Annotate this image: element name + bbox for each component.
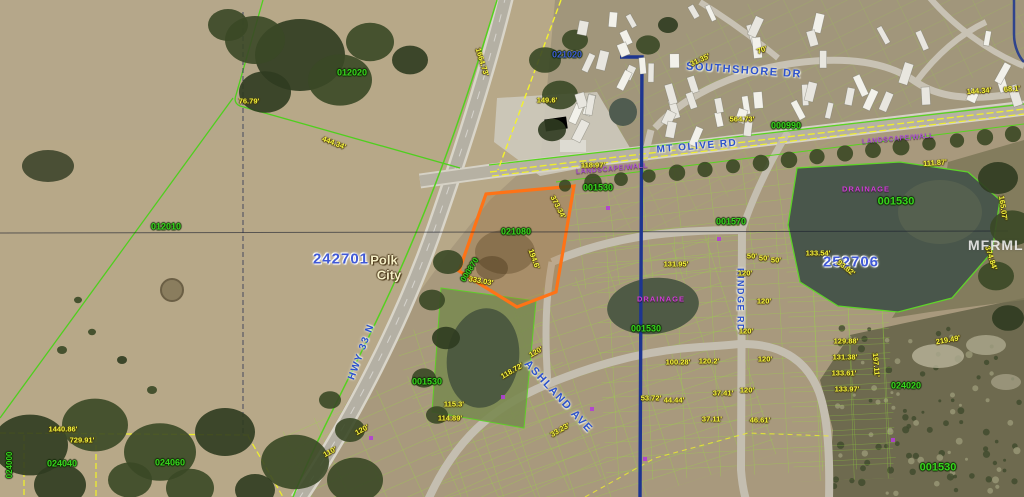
limestone-patch xyxy=(912,344,964,368)
sinkhole xyxy=(161,279,183,301)
limestone-patch xyxy=(966,335,1006,355)
gas-station-building xyxy=(560,140,586,152)
limestone-patch xyxy=(991,374,1021,390)
pasture-pond xyxy=(22,150,74,182)
pond-marsh xyxy=(898,180,982,244)
map-canvas xyxy=(0,0,1024,497)
aerial-parcel-map[interactable]: 0120200120100210800210200015300015300015… xyxy=(0,0,1024,497)
small-round-pond xyxy=(609,98,637,126)
